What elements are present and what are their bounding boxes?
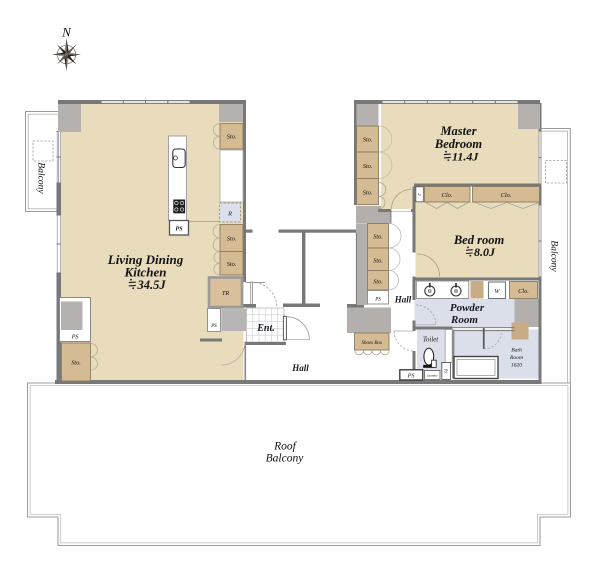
svg-text:PS: PS — [374, 298, 381, 303]
svg-text:Sto.: Sto. — [227, 236, 237, 243]
svg-text:Sto.: Sto. — [363, 137, 373, 144]
svg-text:Laundry: Laundry — [426, 374, 438, 378]
svg-text:Room: Room — [509, 355, 523, 361]
svg-text:Room: Room — [450, 314, 478, 326]
svg-text:R: R — [227, 211, 232, 218]
svg-text:Clo.: Clo. — [501, 192, 512, 199]
svg-text:Sto.: Sto. — [373, 258, 383, 265]
svg-text:Sto.: Sto. — [373, 279, 383, 286]
svg-text:Sto.: Sto. — [363, 190, 373, 197]
svg-text:Balcony: Balcony — [266, 453, 305, 465]
svg-text:Clo.: Clo. — [518, 288, 529, 295]
svg-text:PS: PS — [175, 226, 183, 233]
svg-text:N: N — [61, 25, 72, 40]
svg-text:Sto.: Sto. — [363, 163, 373, 170]
svg-text:Hall: Hall — [291, 363, 309, 373]
svg-text:11.4J: 11.4J — [452, 150, 479, 164]
svg-text:Balcony: Balcony — [36, 162, 46, 194]
svg-text:Powder: Powder — [450, 302, 485, 314]
svg-text:Shoes Box: Shoes Box — [361, 341, 382, 346]
svg-text:PS: PS — [407, 373, 415, 380]
svg-text:PS: PS — [71, 334, 79, 341]
svg-text:Balcony: Balcony — [549, 240, 559, 272]
svg-text:1620: 1620 — [511, 363, 522, 369]
svg-text:8.0J: 8.0J — [474, 245, 496, 259]
svg-text:PS: PS — [444, 368, 448, 373]
svg-text:Sto.: Sto. — [71, 360, 81, 367]
svg-text:Hall: Hall — [394, 295, 412, 305]
svg-text:Toilet: Toilet — [423, 337, 439, 344]
svg-text:Clo.: Clo. — [442, 192, 453, 199]
svg-text:Sto.: Sto. — [227, 134, 237, 141]
svg-text:PS: PS — [210, 324, 217, 329]
svg-text:Sto.: Sto. — [373, 234, 383, 241]
svg-text:Bath: Bath — [511, 348, 522, 354]
svg-text:Sto.: Sto. — [227, 261, 237, 268]
svg-text:Roof: Roof — [273, 441, 298, 453]
svg-text:34.5J: 34.5J — [137, 278, 167, 292]
svg-text:TR: TR — [222, 290, 230, 297]
svg-text:Ent.: Ent. — [256, 323, 275, 334]
